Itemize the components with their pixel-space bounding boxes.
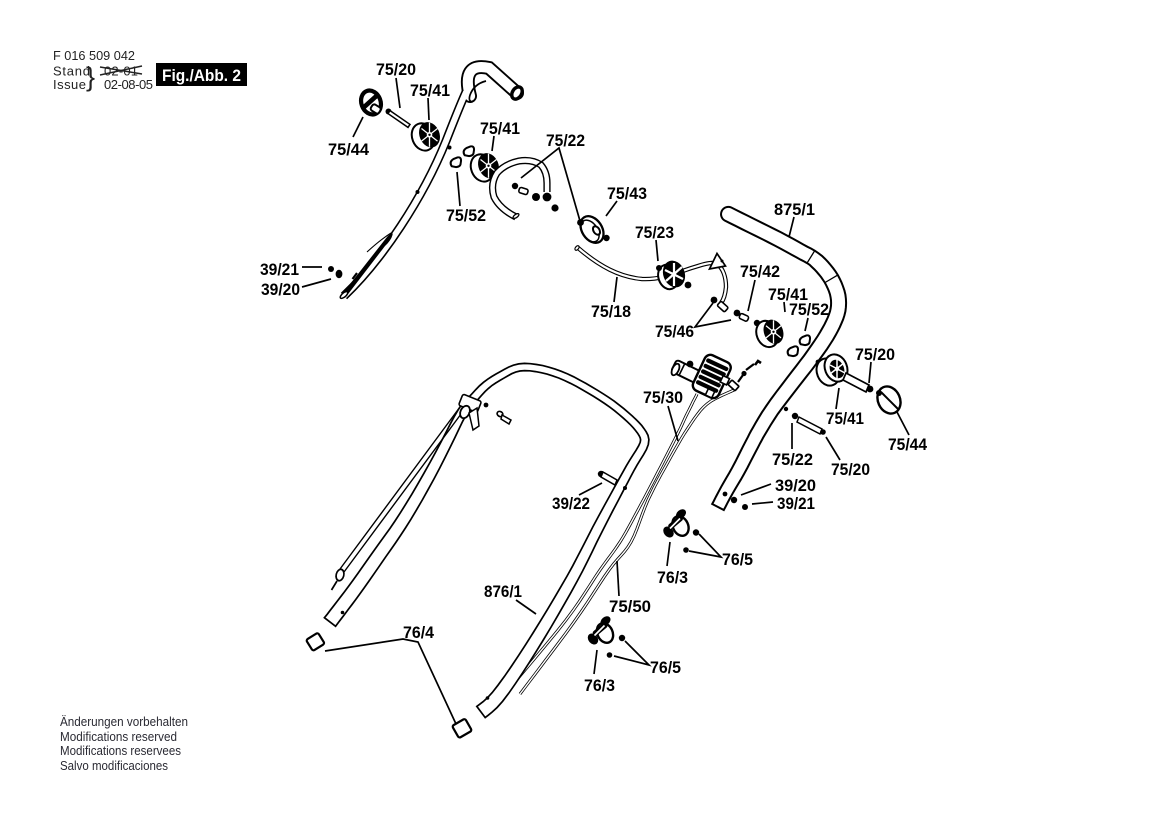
svg-text:75/50: 75/50 — [609, 597, 651, 616]
svg-text:76/5: 76/5 — [650, 658, 681, 677]
svg-text:F 016 509 042: F 016 509 042 — [53, 48, 135, 63]
svg-text:75/18: 75/18 — [591, 302, 631, 321]
svg-text:02-08-05: 02-08-05 — [104, 77, 153, 92]
svg-text:75/20: 75/20 — [831, 460, 870, 479]
svg-text:875/1: 875/1 — [774, 200, 815, 219]
svg-text:Modifications reserved: Modifications reserved — [60, 729, 177, 744]
svg-text:75/42: 75/42 — [740, 262, 780, 281]
svg-text:876/1: 876/1 — [484, 582, 522, 601]
svg-text:75/41: 75/41 — [480, 119, 520, 138]
svg-text:75/43: 75/43 — [607, 184, 647, 203]
svg-text:75/46: 75/46 — [655, 322, 694, 341]
svg-text:76/3: 76/3 — [657, 568, 688, 587]
svg-text:75/23: 75/23 — [635, 223, 674, 242]
svg-text:76/4: 76/4 — [403, 623, 435, 642]
svg-text:75/20: 75/20 — [855, 345, 895, 364]
svg-text:75/52: 75/52 — [446, 206, 486, 225]
svg-text:Änderungen vorbehalten: Änderungen vorbehalten — [60, 714, 188, 729]
svg-text:75/41: 75/41 — [826, 409, 864, 428]
svg-text:39/20: 39/20 — [775, 476, 816, 495]
svg-text:75/44: 75/44 — [328, 140, 370, 159]
svg-text:75/22: 75/22 — [772, 450, 813, 469]
svg-text:75/52: 75/52 — [789, 300, 829, 319]
svg-text:Salvo modificaciones: Salvo modificaciones — [60, 758, 168, 773]
svg-text:}: } — [86, 62, 95, 92]
svg-text:Issue: Issue — [53, 77, 86, 92]
svg-text:39/21: 39/21 — [777, 494, 815, 513]
svg-text:75/20: 75/20 — [376, 60, 416, 79]
svg-text:39/22: 39/22 — [552, 494, 590, 513]
svg-text:76/3: 76/3 — [584, 676, 615, 695]
svg-text:Modifications reservees: Modifications reservees — [60, 743, 181, 758]
svg-text:75/44: 75/44 — [888, 435, 928, 454]
svg-text:76/5: 76/5 — [722, 550, 753, 569]
svg-text:Fig./Abb. 2: Fig./Abb. 2 — [162, 66, 241, 85]
svg-text:75/30: 75/30 — [643, 388, 683, 407]
svg-text:39/21: 39/21 — [260, 260, 299, 279]
svg-text:39/20: 39/20 — [261, 280, 300, 299]
svg-text:75/22: 75/22 — [546, 131, 585, 150]
svg-text:75/41: 75/41 — [410, 81, 450, 100]
